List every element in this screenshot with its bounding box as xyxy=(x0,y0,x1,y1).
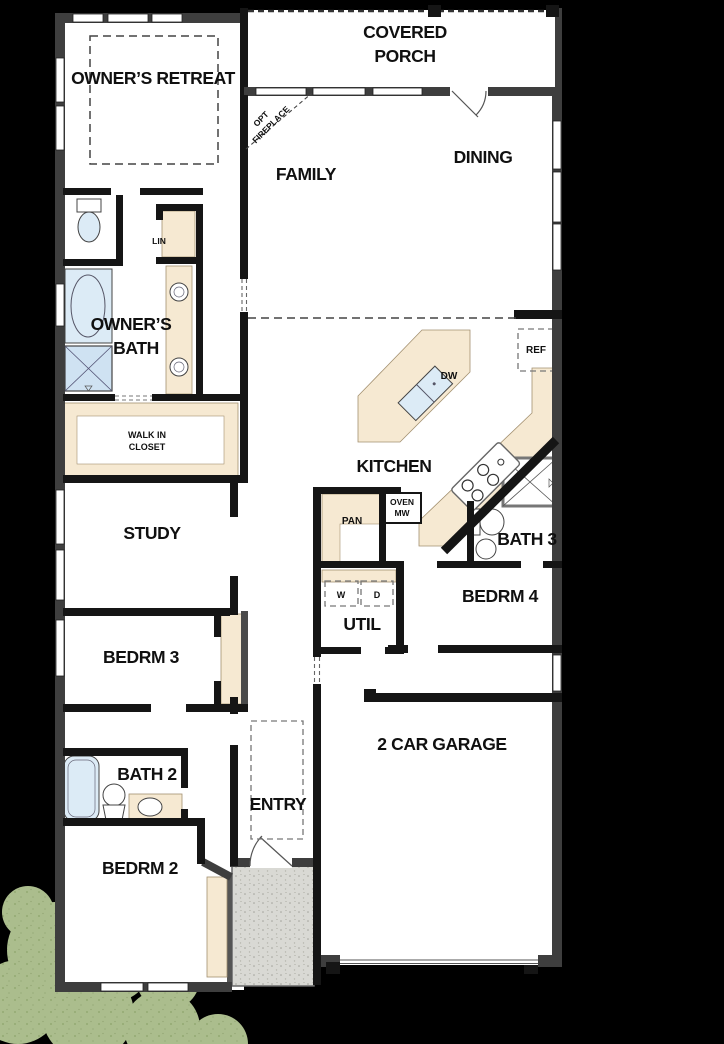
walkin-east-wall xyxy=(240,312,248,478)
window-icon xyxy=(313,88,365,95)
window-icon xyxy=(108,14,148,22)
bath-closet-wall xyxy=(152,394,248,401)
label-dryer: D xyxy=(374,590,381,600)
bath2-sink-icon xyxy=(138,798,162,816)
bath3-bottom-wall xyxy=(543,561,562,568)
window-icon xyxy=(373,88,422,95)
stoop-edge xyxy=(227,876,232,984)
entry-west-wall xyxy=(230,745,238,866)
garage-bottom-wall-right xyxy=(538,955,562,967)
pantry-top-wall xyxy=(313,487,401,494)
label-kitchen: KITCHEN xyxy=(357,456,432,476)
bedrm4-bottom-wall xyxy=(388,645,408,653)
linen-top-wall xyxy=(156,204,203,211)
window-icon xyxy=(553,172,561,222)
window-icon xyxy=(553,121,561,169)
util-top-wall xyxy=(313,561,401,568)
study-east-wall xyxy=(230,483,238,517)
label-oven: OVEN xyxy=(390,497,414,507)
label-lin: LIN xyxy=(152,236,166,246)
label-bedrm3: BEDRM 3 xyxy=(103,647,180,667)
label-closet: CLOSET xyxy=(129,442,166,452)
util-counter xyxy=(322,570,396,582)
shower-icon xyxy=(65,346,112,391)
bath3-sink-icon xyxy=(476,539,496,559)
window-icon xyxy=(553,224,561,270)
label-util: UTIL xyxy=(343,614,381,634)
window-icon xyxy=(56,106,64,150)
label-walk-in: WALK IN xyxy=(128,430,166,440)
toilet-room-wall xyxy=(116,195,123,259)
bath2-east-wall xyxy=(181,748,188,788)
entry-floor xyxy=(238,695,318,867)
floor-plan-canvas: OWNER’S RETREAT COVERED PORCH FAMILY DIN… xyxy=(0,0,724,1044)
window-icon xyxy=(56,490,64,544)
label-owners: OWNER’S xyxy=(91,314,172,334)
bath3-bottom-wall xyxy=(437,561,521,568)
linen-jamb xyxy=(156,204,163,220)
hall-east-wall xyxy=(313,487,321,657)
pantry-floor xyxy=(340,524,380,564)
window-icon xyxy=(152,14,182,22)
garage-top-wall xyxy=(364,693,562,702)
label-mw: MW xyxy=(394,508,410,518)
linen-bottom-wall xyxy=(156,257,203,264)
floor-plan-drawing: OWNER’S RETREAT COVERED PORCH FAMILY DIN… xyxy=(0,0,724,1044)
window-icon xyxy=(56,550,64,600)
hall-garage-wall xyxy=(313,684,321,985)
label-family: FAMILY xyxy=(276,164,337,184)
study-bottom-wall xyxy=(63,608,230,616)
bedrm3-closet-door xyxy=(241,611,248,707)
util-bottom-wall xyxy=(313,647,361,654)
label-bath: BATH xyxy=(113,338,159,358)
window-icon xyxy=(553,655,561,691)
bedrm3-closet-jamb xyxy=(214,611,221,637)
bedrm2-side-cabinet xyxy=(207,877,227,977)
label-entry: ENTRY xyxy=(250,794,307,814)
bedrm3-bottom-wall xyxy=(186,704,248,712)
bedrm3-bottom-wall xyxy=(63,704,151,712)
label-dining: DINING xyxy=(454,147,513,167)
window-icon xyxy=(256,88,306,95)
entry-west-wall xyxy=(230,697,238,714)
pantry-east-wall xyxy=(379,487,386,564)
porch-post-icon xyxy=(546,5,559,17)
label-bath2: BATH 2 xyxy=(117,764,177,784)
window-icon xyxy=(56,284,64,326)
label-bedrm2: BEDRM 2 xyxy=(102,858,179,878)
vanity-east-wall xyxy=(196,204,203,397)
family-west-wall xyxy=(240,95,248,279)
label-covered: COVERED xyxy=(363,22,447,42)
kitchen-jog-wall xyxy=(514,310,562,319)
toilet-icon xyxy=(77,199,101,242)
bedrm3-closet-shelf xyxy=(221,614,242,704)
bath2-tub-icon xyxy=(64,756,99,821)
left-wing-floor xyxy=(58,18,244,990)
stoop-floor xyxy=(232,866,314,986)
porch-east-edge xyxy=(555,8,562,88)
window-icon xyxy=(73,14,103,22)
util-east-wall xyxy=(396,561,404,653)
bush-icon xyxy=(2,886,54,938)
label-ref: REF xyxy=(526,345,546,356)
walkin-closet-floor xyxy=(77,416,224,464)
porch-post-icon xyxy=(428,5,441,17)
closet-study-wall xyxy=(63,475,248,483)
linen-closet-shelf xyxy=(162,211,195,257)
garage-door-jamb xyxy=(326,962,340,974)
window-icon xyxy=(148,983,188,991)
retreat-bottom-wall xyxy=(140,188,203,195)
label-washer: W xyxy=(337,590,346,600)
window-icon xyxy=(101,983,143,991)
exterior-wall-bottom-left-wing xyxy=(55,982,232,992)
owners-bath-top-wall xyxy=(63,259,123,266)
label-study: STUDY xyxy=(123,523,181,543)
bath2-top-wall xyxy=(63,748,183,756)
label-dw: DW xyxy=(441,371,458,382)
bedrm2-top-wall xyxy=(63,818,205,826)
family-opening-dashes xyxy=(240,279,248,312)
study-east-wall xyxy=(230,576,238,615)
window-icon xyxy=(56,620,64,676)
label-owners-retreat: OWNER’S RETREAT xyxy=(71,68,236,88)
label-porch: PORCH xyxy=(374,46,435,66)
label-garage: 2 CAR GARAGE xyxy=(377,734,506,754)
bedrm4-bottom-wall xyxy=(438,645,562,653)
porch-west-wall xyxy=(240,8,248,96)
bedrm3-closet-jamb xyxy=(214,681,221,707)
garage-door xyxy=(340,957,538,965)
retreat-bottom-wall xyxy=(63,188,111,195)
entry-front-wall-right xyxy=(292,858,313,867)
label-bath3: BATH 3 xyxy=(497,529,557,549)
label-bedrm4: BEDRM 4 xyxy=(462,586,539,606)
bedrm2-east-wall xyxy=(197,826,205,864)
bath2-toilet-icon xyxy=(103,784,125,820)
bath-closet-wall xyxy=(63,394,115,401)
window-icon xyxy=(56,58,64,102)
label-pan: PAN xyxy=(342,516,362,527)
hall-opening-dashes xyxy=(313,657,321,684)
